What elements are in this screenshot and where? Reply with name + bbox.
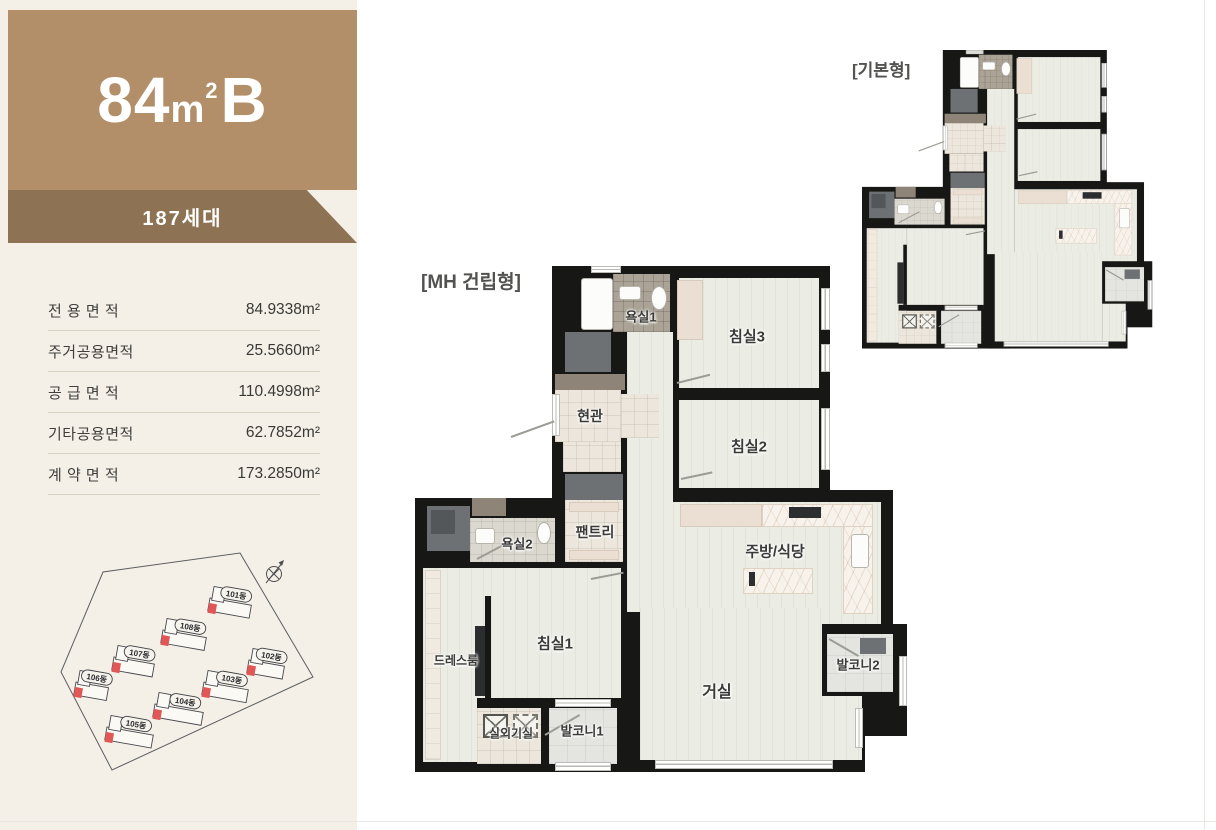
plan-g-shape <box>860 638 886 654</box>
plan-winv-shape <box>1102 134 1107 171</box>
unit-location-marker <box>104 732 114 743</box>
plan-winh-shape <box>966 50 984 54</box>
room-label: 욕실2 <box>501 534 532 553</box>
plan-ct-shape <box>1018 190 1066 204</box>
plan-fxo-shape <box>934 201 942 214</box>
plan-f-shape <box>627 332 673 612</box>
plan-winv-shape <box>855 708 863 748</box>
unit-title-superscript: 2 <box>205 78 218 103</box>
room-label: 침실2 <box>731 436 767 457</box>
plan-tg-shape <box>945 123 984 154</box>
room-label: 욕실1 <box>625 307 656 326</box>
plan-fx-shape <box>1119 208 1130 228</box>
plan-tg-shape <box>984 126 1006 152</box>
plan-dl-shape <box>918 141 944 151</box>
plan-dk-shape <box>749 572 755 586</box>
area-table: 전 용 면 적84.9338m²주거공용면적25.5660m²공 급 면 적11… <box>48 290 320 495</box>
plan-dl-shape <box>511 420 555 438</box>
unit-location-marker <box>207 603 217 614</box>
plan-winv-shape <box>1122 311 1127 335</box>
plan-tp-shape <box>896 187 916 198</box>
plan-gd-shape <box>431 510 455 534</box>
unit-title-unit: m <box>170 89 205 131</box>
plan-g-shape <box>565 332 611 372</box>
plan-tp-shape <box>555 374 625 390</box>
area-label: 전 용 면 적 <box>48 300 119 321</box>
plan-fxo-shape <box>537 522 551 544</box>
plan-ct-shape <box>677 280 703 340</box>
area-label: 공 급 면 적 <box>48 382 119 403</box>
room-label: 팬트리 <box>576 522 615 542</box>
plan-winv-shape <box>821 344 830 372</box>
plan-g-shape <box>1125 269 1140 278</box>
compass-icon <box>266 560 284 583</box>
area-value: 62.7852m² <box>246 424 320 442</box>
plan-wall <box>485 596 491 698</box>
plan-g-shape <box>565 474 623 500</box>
plan-fx-shape <box>581 278 613 330</box>
unit-title-block: 84m2B <box>8 10 357 190</box>
plan-winv-shape <box>899 656 907 706</box>
floorplan-basic <box>862 50 1152 349</box>
plan-f-shape <box>995 252 1102 342</box>
plan-winh-shape <box>591 266 621 273</box>
area-value: 84.9338m² <box>246 301 320 319</box>
room-label: 침실3 <box>729 326 765 347</box>
site-building: 104동 <box>152 690 205 727</box>
room-label: 주방/식당 <box>745 541 804 562</box>
site-building: 108동 <box>160 616 208 652</box>
plan-ct-shape <box>569 550 619 560</box>
plan-xbd-shape <box>920 314 935 328</box>
plan-cl-shape <box>868 229 877 341</box>
room-label: 발코니2 <box>836 655 879 674</box>
plan-xb-shape <box>902 314 917 328</box>
area-label: 주거공용면적 <box>48 341 134 362</box>
plan-dk-shape <box>1083 192 1102 198</box>
plan-ct-shape <box>680 504 762 527</box>
unit-title-number: 84 <box>97 64 170 136</box>
plan-fx-shape <box>982 62 995 70</box>
unit-location-marker <box>152 709 162 720</box>
plan-g-shape <box>951 89 978 113</box>
site-building: 101동 <box>207 584 253 620</box>
plan-tg-shape <box>621 394 659 438</box>
site-plan: 101동102동103동104동105동106동107동108동 <box>30 535 390 825</box>
room-label: 현관 <box>577 406 603 426</box>
area-row: 전 용 면 적84.9338m² <box>48 290 320 331</box>
site-building: 105동 <box>104 713 155 750</box>
area-value: 25.5660m² <box>246 342 320 360</box>
site-building: 107동 <box>111 643 156 679</box>
area-label: 계 약 면 적 <box>48 464 119 485</box>
plan-g-shape <box>951 173 985 188</box>
plan-fx-shape <box>851 534 869 568</box>
page-bottom-divider <box>0 821 1216 822</box>
plan-winv-shape <box>943 126 948 151</box>
plan-winh-shape <box>555 699 611 707</box>
plan-ct-shape <box>953 189 983 195</box>
plan-fx-shape <box>897 205 909 214</box>
room-label: 거실 <box>702 678 731 702</box>
site-building: 106동 <box>73 668 113 703</box>
plan-winv-shape <box>1102 63 1107 88</box>
plan-fxo-shape <box>1001 62 1010 76</box>
household-count: 187세대 <box>142 202 222 231</box>
plan-winh-shape <box>555 762 611 771</box>
area-label: 기타공용면적 <box>48 423 134 444</box>
plan-winh-shape <box>655 760 833 769</box>
room-label: 실외기실 <box>489 725 533 742</box>
plan-tp-shape <box>472 498 506 516</box>
plan-f-shape <box>987 89 1014 254</box>
page: 84m2B 187세대 전 용 면 적84.9338m²주거공용면적25.566… <box>0 0 1216 830</box>
area-row: 공 급 면 적110.4998m² <box>48 372 320 413</box>
plan-tp-shape <box>945 114 986 123</box>
area-value: 110.4998m² <box>238 383 320 401</box>
plan-tg-shape <box>563 442 621 472</box>
unit-location-marker <box>201 687 211 698</box>
unit-location-marker <box>73 687 83 698</box>
area-value: 173.2850m² <box>237 465 320 483</box>
site-building: 103동 <box>201 668 250 704</box>
plan-ct-shape <box>569 502 619 512</box>
plan-gd-shape <box>871 194 885 208</box>
plan-bc-shape <box>941 311 981 344</box>
plan-fx-shape <box>960 57 979 88</box>
plan-tg-shape <box>949 154 983 172</box>
plan-winv-shape <box>821 408 830 470</box>
unit-location-marker <box>246 665 256 676</box>
plan-winv-shape <box>1148 280 1153 310</box>
plan-dk-shape <box>789 507 821 518</box>
plan-winh-shape <box>1004 341 1109 346</box>
room-label: 발코니1 <box>560 721 603 740</box>
household-count-badge: 187세대 <box>8 190 357 243</box>
plan-winv-shape <box>821 288 830 330</box>
unit-title-suffix: B <box>221 64 268 136</box>
unit-location-marker <box>160 635 170 646</box>
plan-fx-shape <box>475 528 495 544</box>
plan-dk-shape <box>1059 231 1063 239</box>
plan-winv-shape <box>552 394 560 436</box>
plan-winh-shape <box>945 343 978 348</box>
plan-winh-shape <box>945 305 978 310</box>
room-label: 침실1 <box>537 633 573 654</box>
unit-location-marker <box>111 662 121 673</box>
area-row: 기타공용면적62.7852m² <box>48 413 320 454</box>
site-building: 102동 <box>246 646 288 681</box>
plan-winv-shape <box>1102 96 1107 113</box>
plan-ct-shape <box>953 218 983 224</box>
unit-title: 84m2B <box>97 63 267 137</box>
area-row: 주거공용면적25.5660m² <box>48 331 320 372</box>
unit-info-panel: 84m2B 187세대 전 용 면 적84.9338m²주거공용면적25.566… <box>0 0 357 830</box>
area-row: 계 약 면 적173.2850m² <box>48 454 320 495</box>
plan-wall <box>903 245 907 305</box>
floorplan-mh: 욕실1침실3현관침실2팬트리욕실2주방/식당드레스룸침실1거실발코니2실외기실발… <box>415 266 907 772</box>
plan-fx-shape <box>619 286 641 300</box>
page-right-divider <box>1204 0 1205 830</box>
plan-ct-shape <box>1017 58 1032 93</box>
room-label: 드레스룸 <box>434 652 478 669</box>
plan-f-shape <box>907 228 984 309</box>
